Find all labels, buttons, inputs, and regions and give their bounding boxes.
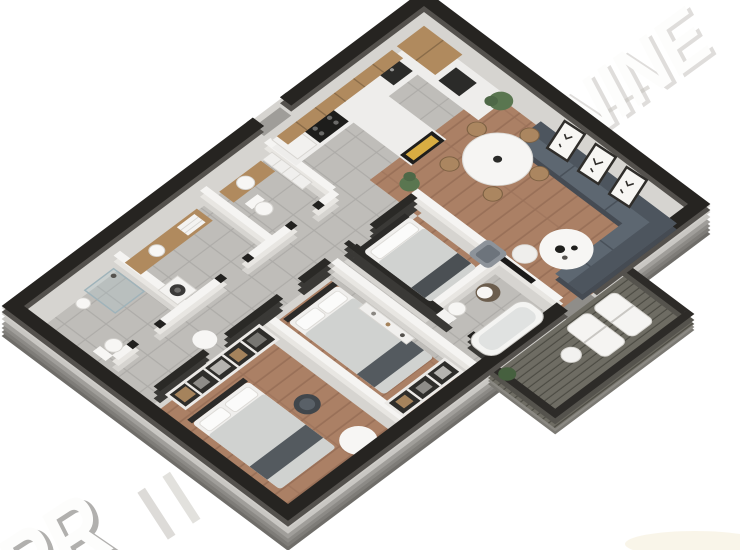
corner-tint: [625, 531, 740, 550]
floorplan-canvas: PR PR NINE NINE: [0, 0, 740, 550]
watermark-fragment-left: PR PR: [0, 469, 130, 550]
watermark-left-text: PR: [0, 471, 125, 550]
floorplan-screenshot: PR PR NINE NINE: [0, 0, 740, 550]
